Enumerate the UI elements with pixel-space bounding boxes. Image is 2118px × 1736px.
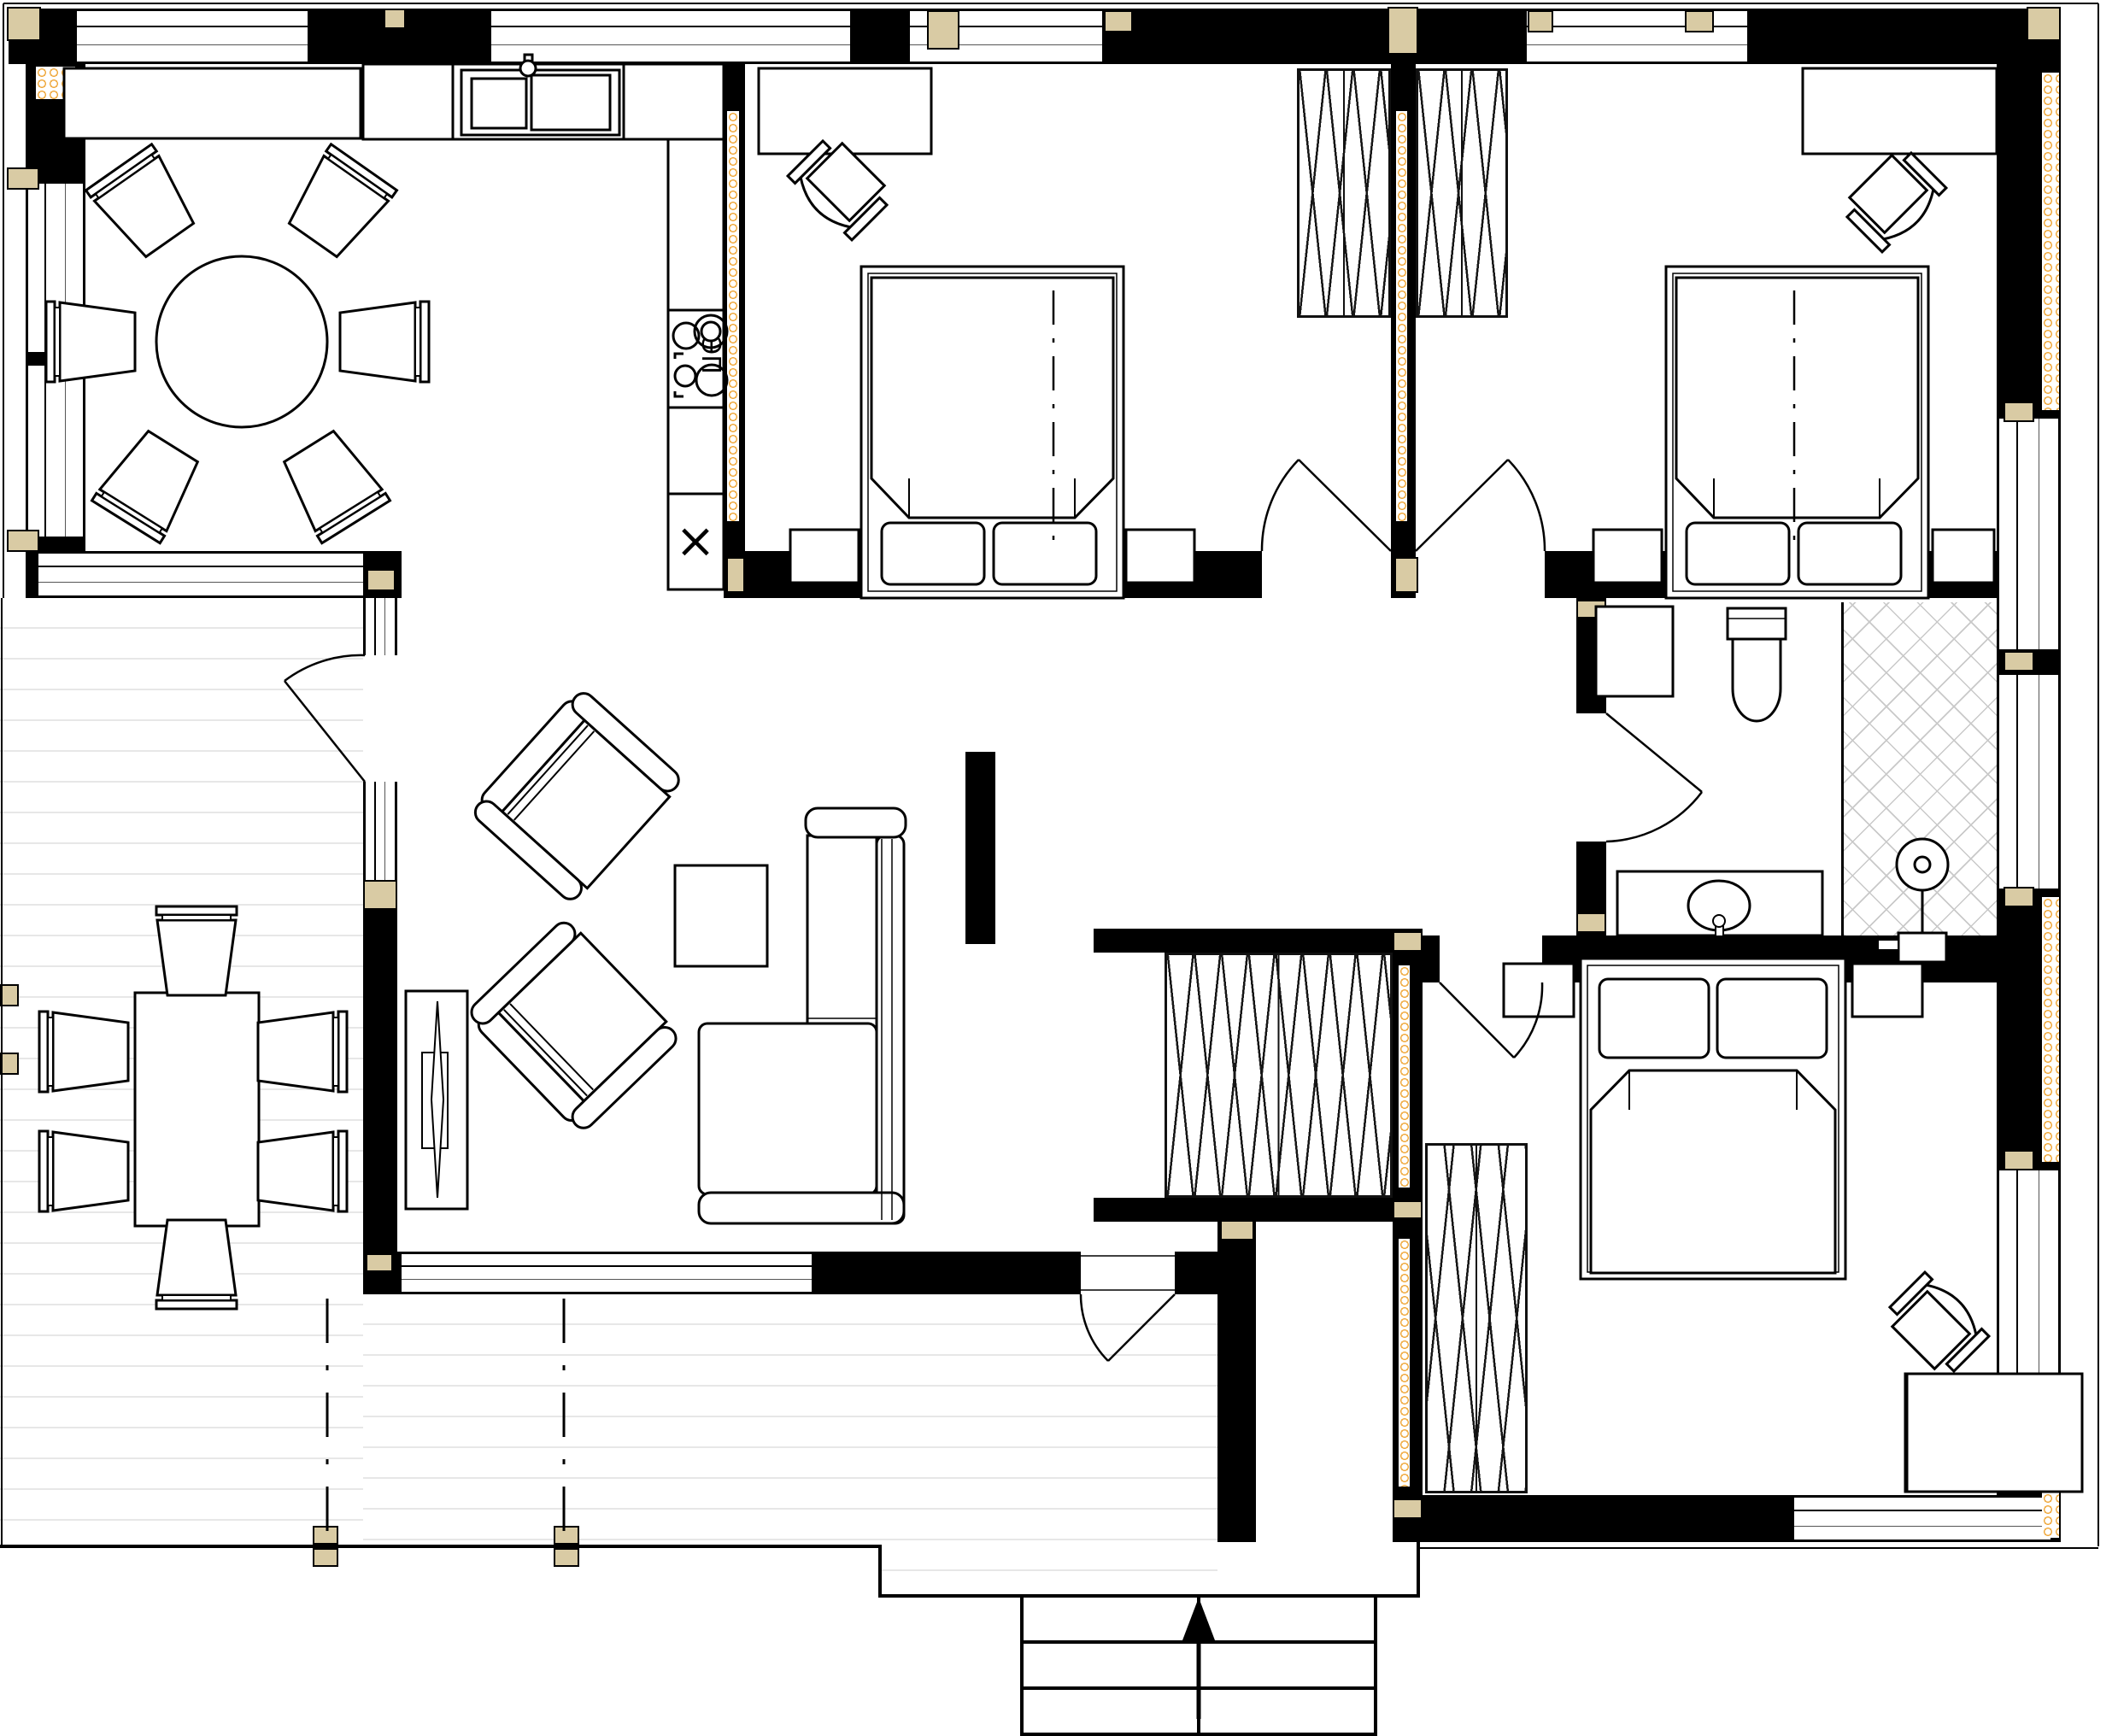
- outdoor-chair: [258, 1131, 347, 1211]
- toilet: [1728, 608, 1786, 721]
- armchair: [465, 917, 682, 1135]
- outdoor-chair: [39, 1012, 128, 1092]
- outdoor-chair: [258, 1012, 347, 1092]
- round-dining-table: [156, 256, 327, 427]
- desk: [1803, 68, 1997, 154]
- dining-chair: [92, 425, 208, 543]
- outdoor-chair: [156, 1220, 237, 1309]
- bed: [1666, 267, 1928, 598]
- outdoor-table: [135, 993, 259, 1226]
- outdoor-chair: [156, 906, 237, 995]
- nightstand: [1852, 964, 1922, 1017]
- nightstand: [1593, 530, 1662, 583]
- desk: [759, 68, 931, 154]
- bed: [861, 267, 1124, 598]
- appliance-cross: ×: [676, 513, 716, 569]
- bed: [1581, 959, 1845, 1279]
- dining-chair: [340, 302, 429, 382]
- floor-plan-canvas: ЭП ×: [0, 0, 2118, 1736]
- sideboard: [64, 68, 361, 138]
- armchair: [468, 687, 684, 905]
- office-chair: [1839, 144, 1949, 255]
- vanity-sink: [1617, 871, 1822, 936]
- dining-chair: [275, 425, 390, 543]
- tv-console: [406, 991, 467, 1209]
- nightstand: [1933, 530, 1994, 583]
- outdoor-chair: [39, 1131, 128, 1211]
- nightstand: [790, 530, 859, 583]
- cooktop-label: ЭП: [695, 337, 725, 374]
- appliance-box: ×: [668, 494, 724, 589]
- dining-chair: [86, 144, 203, 263]
- dining-chair: [280, 144, 397, 263]
- nightstand: [1126, 530, 1194, 583]
- office-chair: [1881, 1270, 1992, 1380]
- dining-chair: [46, 302, 135, 382]
- shower-head-icon: [1878, 839, 1948, 962]
- desk-top: [1907, 1374, 2082, 1492]
- furniture-layer: ЭП ×: [0, 0, 2118, 1736]
- bathroom-cabinet: [1596, 607, 1673, 696]
- coffee-table: [675, 865, 767, 966]
